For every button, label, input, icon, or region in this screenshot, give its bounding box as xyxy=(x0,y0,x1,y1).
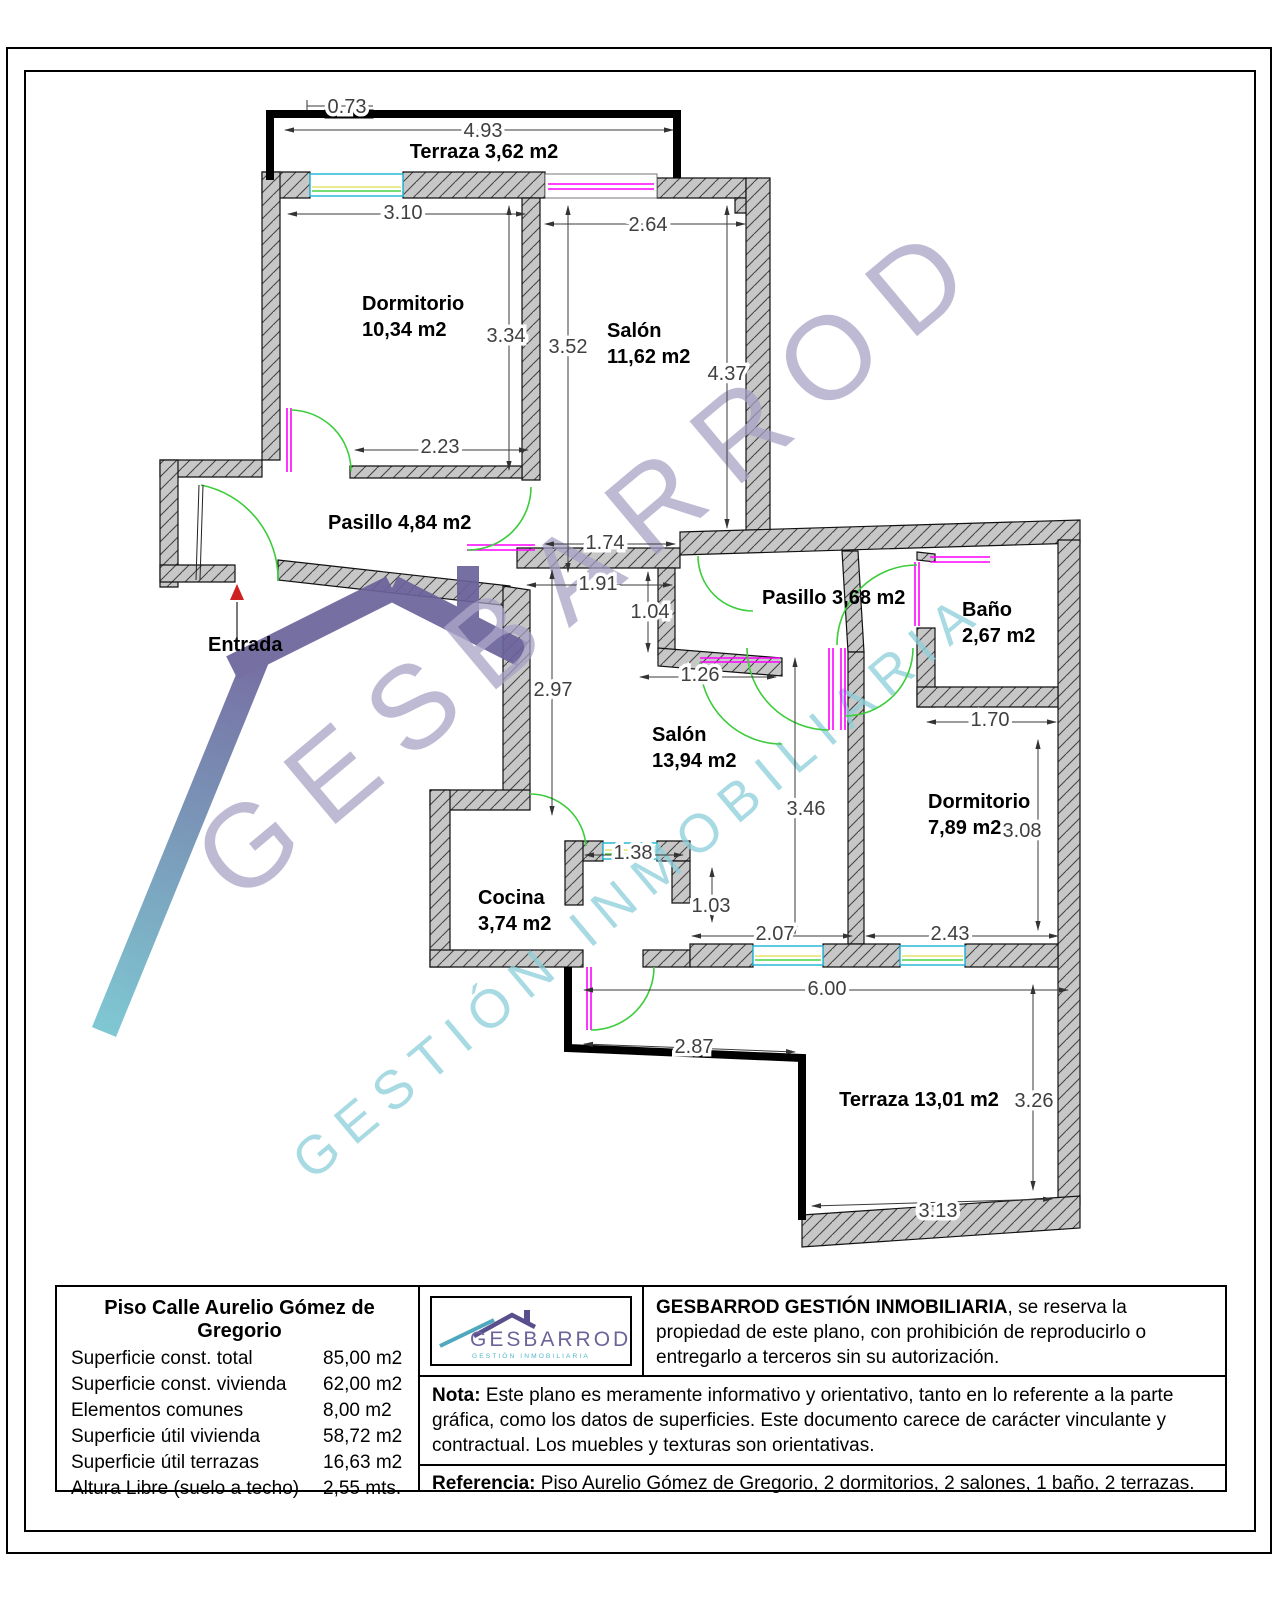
dimension-label-d346: 3.46 xyxy=(787,798,826,820)
window-icon xyxy=(753,946,823,965)
wall xyxy=(965,944,1058,967)
dimension-label-d437: 4.37 xyxy=(708,363,747,385)
summary-row-label: Superficie útil terrazas xyxy=(71,1450,323,1476)
summary-row-value: 58,72 m2 xyxy=(323,1424,402,1450)
wall xyxy=(917,687,1058,707)
door-swing-arc xyxy=(698,556,753,611)
logo-tagline: GESTIÓN INMOBILIARIA xyxy=(472,1351,590,1360)
dimension-label-d191: 1.91 xyxy=(579,573,618,595)
room-label-dormitorio-1: Dormitorio xyxy=(362,293,464,315)
dimension-label-d310: 3.10 xyxy=(384,202,423,224)
wall xyxy=(160,565,235,582)
plan-sheet: GESBARROD GESTIÓN INMOBILIARIA 0.734.933… xyxy=(0,0,1280,1600)
window-icon xyxy=(310,174,403,196)
room-label-salon-1: 11,62 m2 xyxy=(607,346,690,368)
dimension-label-d223: 2.23 xyxy=(421,436,460,458)
dimension-label-d243: 2.43 xyxy=(931,923,970,945)
summary-row-label: Superficie const. vivienda xyxy=(71,1372,323,1398)
floor-plan-svg: GESBARROD GESTIÓN INMOBILIARIA 0.734.933… xyxy=(0,0,1280,1280)
referencia-bold: Referencia: xyxy=(432,1473,536,1494)
room-label-dormitorio-2: Dormitorio xyxy=(928,791,1030,813)
wall xyxy=(350,466,522,478)
dimension-label-d326: 3.26 xyxy=(1015,1090,1054,1112)
dimension-label-d126: 1.26 xyxy=(681,664,720,686)
dimension-label-d287: 2.87 xyxy=(675,1036,714,1058)
room-label-cocina: 3,74 m2 xyxy=(478,913,551,935)
summary-row-label: Superficie const. total xyxy=(71,1346,323,1372)
summary-title: Piso Calle Aurelio Gómez de Gregorio xyxy=(71,1297,408,1343)
wall xyxy=(657,178,746,198)
summary-row-value: 2,55 mts. xyxy=(323,1476,401,1502)
dimension-label-d313: 3.13 xyxy=(919,1200,958,1222)
summary-row: Superficie const. total85,00 m2 xyxy=(71,1346,408,1372)
room-label-pasillo-1: Pasillo 4,84 m2 xyxy=(328,512,471,534)
summary-row-label: Altura Libre (suelo a techo) xyxy=(71,1476,323,1502)
referencia-rest: Piso Aurelio Gómez de Gregorio, 2 dormit… xyxy=(536,1473,1195,1494)
wall xyxy=(262,172,280,460)
summary-row-value: 8,00 m2 xyxy=(323,1398,392,1424)
summary-row-label: Superficie útil vivienda xyxy=(71,1424,323,1450)
door-swing-arc xyxy=(530,794,586,846)
dimension-label-d138: 1.38 xyxy=(614,842,653,864)
dimension-label-d493: 4.93 xyxy=(464,120,503,142)
nota-rest: Este plano es meramente informativo y or… xyxy=(432,1385,1173,1456)
room-label-entrada: Entrada xyxy=(208,634,283,656)
entrance-arrow xyxy=(230,584,244,640)
wall xyxy=(1058,540,1080,1205)
legal-area: GESBARROD GESTIÓN INMOBILIARIA GESBARROD… xyxy=(420,1287,1225,1490)
room-label-dormitorio-1: 10,34 m2 xyxy=(362,319,447,341)
dimension-label-d174: 1.74 xyxy=(586,532,625,554)
dimension-label-d264: 2.64 xyxy=(629,214,668,236)
room-label-dormitorio-2: 7,89 m2 xyxy=(928,817,1001,839)
room-label-salon-2: 13,94 m2 xyxy=(652,750,737,772)
copyright-bold: GESBARROD GESTIÓN INMOBILIARIA xyxy=(656,1297,1008,1318)
logo-name: GESBARROD xyxy=(470,1328,628,1351)
dimension-label-d104: 1.04 xyxy=(631,601,670,623)
wall xyxy=(430,790,450,967)
window-icon xyxy=(900,946,965,965)
dimension-label-d073: 0.73 xyxy=(328,96,367,118)
surface-summary-table: Piso Calle Aurelio Gómez de Gregorio Sup… xyxy=(57,1287,420,1490)
room-label-terraza-inferior: Terraza 13,01 m2 xyxy=(839,1089,999,1111)
logo-cell: GESBARROD GESTIÓN INMOBILIARIA xyxy=(420,1287,644,1375)
room-label-bano: 2,67 m2 xyxy=(962,625,1035,647)
summary-row: Superficie útil vivienda58,72 m2 xyxy=(71,1424,408,1450)
info-panel: Piso Calle Aurelio Gómez de Gregorio Sup… xyxy=(55,1285,1227,1492)
dimension-label-d334: 3.34 xyxy=(487,325,526,347)
referencia-text: Referencia: Piso Aurelio Gómez de Gregor… xyxy=(420,1466,1225,1502)
wall xyxy=(643,950,690,967)
dimension-label-d207: 2.07 xyxy=(756,923,795,945)
room-label-terraza-superior: Terraza 3,62 m2 xyxy=(410,141,559,163)
room-label-salon-2: Salón xyxy=(652,724,706,746)
summary-row: Superficie const. vivienda62,00 m2 xyxy=(71,1372,408,1398)
watermark-text-main: GESBARROD xyxy=(170,190,1012,926)
dimension-label-d103: 1.03 xyxy=(692,895,731,917)
wall xyxy=(403,172,545,198)
copyright-text: GESBARROD GESTIÓN INMOBILIARIA, se reser… xyxy=(644,1287,1225,1375)
dimension-label-d352: 3.52 xyxy=(549,336,588,358)
summary-row-value: 62,00 m2 xyxy=(323,1372,402,1398)
room-label-pasillo-2: Pasillo 3,68 m2 xyxy=(762,587,905,609)
summary-row-value: 85,00 m2 xyxy=(323,1346,402,1372)
nota-text: Nota: Este plano es meramente informativ… xyxy=(420,1377,1225,1466)
summary-row: Superficie útil terrazas16,63 m2 xyxy=(71,1450,408,1476)
terrace-boundary-wall xyxy=(568,967,802,1220)
dimension-label-d308: 3.08 xyxy=(1003,820,1042,842)
summary-rows: Superficie const. total85,00 m2Superfici… xyxy=(71,1346,408,1502)
room-label-salon-1: Salón xyxy=(607,320,661,342)
dimension-label-d170: 1.70 xyxy=(971,709,1010,731)
dimension-label-d297: 2.97 xyxy=(534,679,573,701)
summary-row: Elementos comunes8,00 m2 xyxy=(71,1398,408,1424)
wall xyxy=(690,944,753,967)
summary-row-label: Elementos comunes xyxy=(71,1398,323,1424)
logo-box: GESBARROD GESTIÓN INMOBILIARIA xyxy=(430,1296,632,1366)
door-swing-arc xyxy=(591,967,654,1030)
wall xyxy=(823,944,900,967)
dimension-label-d600: 6.00 xyxy=(808,978,847,1000)
summary-row: Altura Libre (suelo a techo)2,55 mts. xyxy=(71,1476,408,1502)
room-label-bano: Baño xyxy=(962,599,1012,621)
nota-bold: Nota: xyxy=(432,1385,481,1406)
gesbarrod-logo-icon: GESBARROD GESTIÓN INMOBILIARIA xyxy=(434,1300,628,1362)
room-label-cocina: Cocina xyxy=(478,887,546,909)
door-swing-arc xyxy=(291,410,351,471)
wall xyxy=(680,520,1080,555)
summary-row-value: 16,63 m2 xyxy=(323,1450,402,1476)
